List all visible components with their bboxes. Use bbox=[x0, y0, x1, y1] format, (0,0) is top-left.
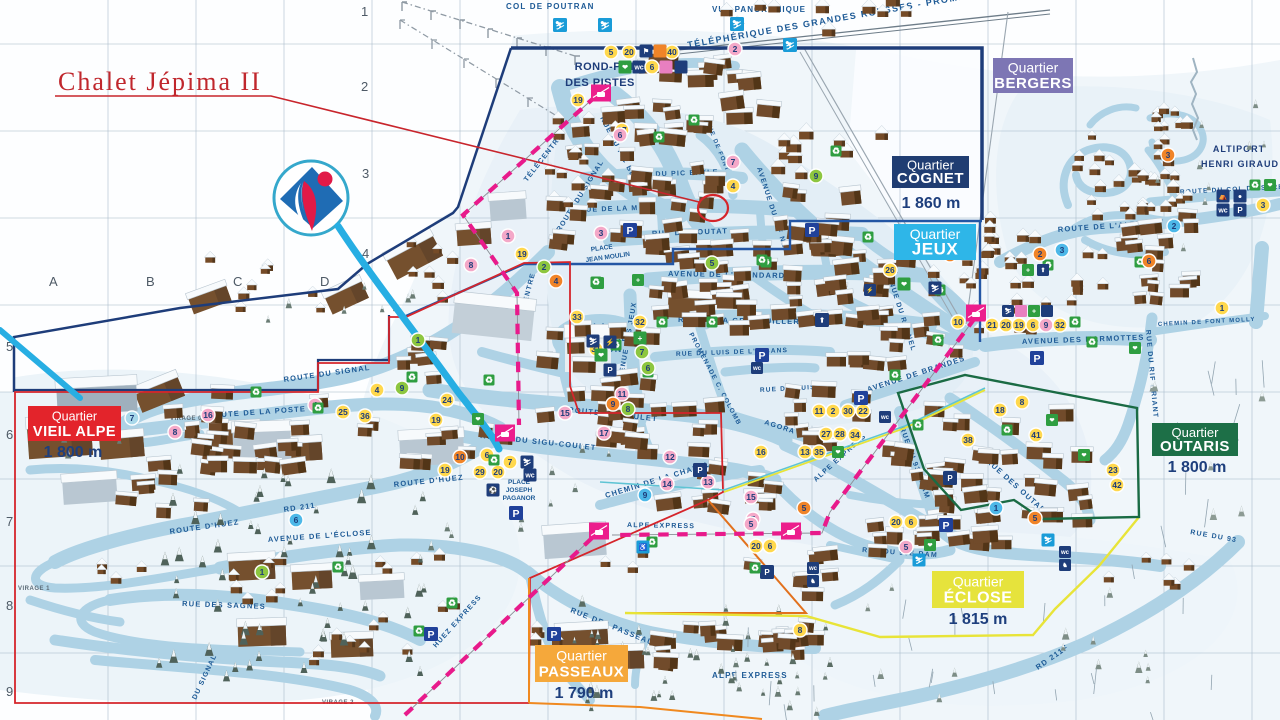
svg-text:♻: ♻ bbox=[1251, 180, 1259, 190]
svg-text:2: 2 bbox=[361, 79, 368, 94]
svg-text:42: 42 bbox=[1112, 480, 1122, 490]
svg-text:33: 33 bbox=[572, 312, 582, 322]
svg-text:7: 7 bbox=[6, 514, 13, 529]
svg-text:8: 8 bbox=[469, 260, 474, 270]
svg-text:19: 19 bbox=[431, 415, 441, 425]
svg-text:wc: wc bbox=[880, 415, 890, 421]
svg-text:P: P bbox=[512, 508, 519, 520]
svg-text:21: 21 bbox=[987, 320, 997, 330]
svg-text:6: 6 bbox=[768, 541, 773, 551]
svg-text:⛷: ⛷ bbox=[555, 20, 565, 30]
svg-text:17: 17 bbox=[599, 428, 609, 438]
svg-text:9: 9 bbox=[814, 171, 819, 181]
svg-text:B: B bbox=[146, 274, 155, 289]
svg-text:15: 15 bbox=[560, 408, 570, 418]
svg-text:Quartier: Quartier bbox=[556, 648, 607, 664]
svg-text:⛷: ⛷ bbox=[732, 19, 742, 29]
svg-text:3: 3 bbox=[362, 166, 369, 181]
svg-text:♻: ♻ bbox=[490, 455, 498, 465]
svg-text:C: C bbox=[233, 274, 242, 289]
svg-text:wc: wc bbox=[1217, 208, 1227, 215]
svg-text:+: + bbox=[1032, 309, 1036, 316]
svg-text:26: 26 bbox=[885, 265, 895, 275]
svg-text:1 800 m: 1 800 m bbox=[44, 444, 103, 461]
svg-text:❤: ❤ bbox=[1049, 418, 1054, 424]
svg-text:12: 12 bbox=[665, 452, 675, 462]
svg-text:⬆: ⬆ bbox=[819, 317, 825, 325]
svg-text:7: 7 bbox=[508, 457, 513, 467]
svg-text:♻: ♻ bbox=[485, 375, 493, 385]
svg-text:♻: ♻ bbox=[758, 255, 766, 265]
svg-text:JOSEPH: JOSEPH bbox=[506, 487, 533, 494]
svg-text:♻: ♻ bbox=[708, 317, 716, 327]
svg-text:32: 32 bbox=[1055, 320, 1065, 330]
svg-text:Quartier: Quartier bbox=[52, 410, 97, 424]
svg-text:9: 9 bbox=[643, 490, 648, 500]
svg-text:40: 40 bbox=[667, 47, 677, 57]
svg-text:20: 20 bbox=[493, 467, 503, 477]
svg-text:VIEIL ALPE: VIEIL ALPE bbox=[33, 424, 116, 440]
svg-text:❤: ❤ bbox=[901, 282, 907, 289]
svg-text:6: 6 bbox=[618, 130, 623, 140]
svg-text:♻: ♻ bbox=[655, 132, 663, 142]
svg-text:6: 6 bbox=[1147, 256, 1152, 266]
svg-text:♻: ♻ bbox=[1088, 337, 1096, 347]
svg-text:1: 1 bbox=[416, 335, 421, 345]
svg-text:ÉCLOSE: ÉCLOSE bbox=[944, 587, 1013, 606]
svg-text:Quartier: Quartier bbox=[1008, 60, 1059, 76]
svg-text:wc: wc bbox=[752, 366, 762, 372]
svg-text:9: 9 bbox=[1044, 320, 1049, 330]
svg-text:41: 41 bbox=[1031, 430, 1041, 440]
svg-text:⛷: ⛷ bbox=[600, 20, 610, 30]
svg-text:♻: ♻ bbox=[914, 420, 922, 430]
svg-text:❤: ❤ bbox=[1267, 183, 1272, 189]
svg-text:9: 9 bbox=[400, 383, 405, 393]
svg-text:PAGANOR: PAGANOR bbox=[503, 495, 536, 502]
svg-text:●: ● bbox=[1238, 194, 1242, 201]
svg-text:2: 2 bbox=[733, 44, 738, 54]
svg-text:10: 10 bbox=[953, 317, 963, 327]
svg-text:JEUX: JEUX bbox=[912, 240, 959, 259]
svg-text:8: 8 bbox=[626, 404, 631, 414]
svg-text:24: 24 bbox=[442, 395, 452, 405]
svg-text:D: D bbox=[320, 274, 329, 289]
svg-text:20: 20 bbox=[1001, 320, 1011, 330]
svg-text:8: 8 bbox=[1020, 397, 1025, 407]
svg-text:5: 5 bbox=[609, 47, 614, 57]
svg-text:♻: ♻ bbox=[415, 626, 423, 636]
svg-text:♻: ♻ bbox=[334, 562, 342, 572]
svg-text:9: 9 bbox=[611, 399, 616, 409]
svg-text:♻: ♻ bbox=[934, 335, 942, 345]
svg-text:19: 19 bbox=[440, 465, 450, 475]
svg-text:20: 20 bbox=[891, 517, 901, 527]
svg-text:♻: ♻ bbox=[658, 317, 666, 327]
svg-text:Chalet Jépima II: Chalet Jépima II bbox=[58, 67, 262, 96]
svg-text:⛷: ⛷ bbox=[931, 284, 940, 293]
svg-text:30: 30 bbox=[843, 406, 853, 416]
svg-text:wc: wc bbox=[1060, 550, 1070, 556]
svg-text:♻: ♻ bbox=[751, 563, 759, 573]
svg-text:1: 1 bbox=[506, 231, 511, 241]
svg-text:P: P bbox=[808, 225, 815, 237]
svg-text:19: 19 bbox=[1014, 320, 1024, 330]
svg-text:1 790 m: 1 790 m bbox=[555, 685, 614, 702]
svg-text:P: P bbox=[764, 568, 770, 577]
svg-text:6: 6 bbox=[1031, 320, 1036, 330]
svg-text:5: 5 bbox=[904, 542, 909, 552]
svg-text:1: 1 bbox=[1220, 303, 1225, 313]
svg-text:⛷: ⛷ bbox=[589, 337, 598, 346]
svg-text:❤: ❤ bbox=[927, 543, 932, 549]
svg-text:38: 38 bbox=[963, 435, 973, 445]
svg-text:⬆: ⬆ bbox=[1040, 267, 1045, 274]
svg-text:⚑: ⚑ bbox=[643, 48, 649, 56]
svg-text:29: 29 bbox=[475, 467, 485, 477]
svg-text:18: 18 bbox=[995, 405, 1005, 415]
svg-text:❤: ❤ bbox=[1081, 453, 1086, 459]
svg-text:wc: wc bbox=[633, 65, 643, 72]
svg-text:2: 2 bbox=[831, 406, 836, 416]
svg-text:7: 7 bbox=[640, 347, 645, 357]
svg-text:A: A bbox=[49, 274, 58, 289]
svg-text:+: + bbox=[638, 334, 643, 343]
svg-text:P: P bbox=[607, 366, 613, 375]
svg-text:2: 2 bbox=[1172, 221, 1177, 231]
svg-text:25: 25 bbox=[338, 407, 348, 417]
svg-text:⛷: ⛷ bbox=[915, 556, 924, 565]
svg-text:7: 7 bbox=[130, 413, 135, 423]
svg-text:❤: ❤ bbox=[598, 353, 604, 360]
svg-text:6: 6 bbox=[294, 515, 299, 525]
svg-text:16: 16 bbox=[756, 447, 766, 457]
svg-text:wc: wc bbox=[808, 566, 818, 572]
svg-text:PASSEAUX: PASSEAUX bbox=[539, 663, 624, 680]
svg-text:P: P bbox=[626, 225, 633, 237]
svg-text:OUTARIS: OUTARIS bbox=[1160, 438, 1230, 455]
svg-text:♻: ♻ bbox=[314, 403, 322, 413]
svg-text:3: 3 bbox=[1060, 245, 1065, 255]
svg-text:2: 2 bbox=[1038, 249, 1043, 259]
svg-text:1: 1 bbox=[994, 503, 999, 513]
svg-text:19: 19 bbox=[517, 249, 527, 259]
svg-text:13: 13 bbox=[703, 477, 713, 487]
svg-text:♻: ♻ bbox=[1071, 317, 1079, 327]
svg-text:♻: ♻ bbox=[832, 146, 840, 156]
svg-text:28: 28 bbox=[835, 429, 845, 439]
svg-text:♞: ♞ bbox=[810, 578, 815, 585]
svg-text:3: 3 bbox=[1166, 150, 1171, 160]
svg-text:6: 6 bbox=[909, 517, 914, 527]
svg-text:⛷: ⛷ bbox=[1004, 307, 1012, 315]
svg-text:6: 6 bbox=[6, 427, 13, 442]
svg-text:❤: ❤ bbox=[475, 417, 480, 423]
svg-text:1 800 m: 1 800 m bbox=[1168, 459, 1227, 476]
svg-text:1 860 m: 1 860 m bbox=[902, 195, 961, 212]
svg-text:⚡: ⚡ bbox=[866, 286, 873, 294]
svg-text:20: 20 bbox=[751, 541, 761, 551]
svg-text:P: P bbox=[427, 629, 434, 641]
svg-text:5: 5 bbox=[802, 503, 807, 513]
svg-text:♿: ♿ bbox=[639, 543, 648, 552]
svg-text:22: 22 bbox=[858, 406, 868, 416]
svg-text:36: 36 bbox=[360, 411, 370, 421]
svg-text:ALTIPORT: ALTIPORT bbox=[1213, 144, 1265, 154]
svg-text:8: 8 bbox=[6, 598, 13, 613]
svg-text:♻: ♻ bbox=[690, 115, 698, 125]
svg-text:5: 5 bbox=[749, 519, 754, 529]
svg-text:15: 15 bbox=[746, 492, 756, 502]
svg-text:11: 11 bbox=[815, 406, 824, 416]
svg-text:10: 10 bbox=[455, 452, 465, 462]
svg-text:❤: ❤ bbox=[622, 65, 628, 72]
svg-text:2: 2 bbox=[542, 262, 547, 272]
svg-text:⚡: ⚡ bbox=[606, 338, 615, 347]
svg-text:P: P bbox=[1033, 353, 1040, 365]
svg-text:P: P bbox=[550, 629, 557, 641]
svg-text:❤: ❤ bbox=[835, 450, 840, 456]
svg-text:P: P bbox=[1237, 206, 1243, 215]
svg-text:VIRAGE 1: VIRAGE 1 bbox=[18, 586, 50, 592]
svg-text:⛷: ⛷ bbox=[785, 40, 795, 50]
svg-text:27: 27 bbox=[821, 429, 831, 439]
svg-text:3: 3 bbox=[599, 228, 604, 238]
svg-text:1: 1 bbox=[260, 567, 265, 577]
svg-text:P: P bbox=[697, 466, 703, 475]
svg-text:1 815 m: 1 815 m bbox=[949, 611, 1008, 628]
svg-text:9: 9 bbox=[6, 684, 13, 699]
svg-text:P: P bbox=[857, 393, 864, 405]
svg-text:wc: wc bbox=[524, 473, 534, 480]
svg-text:COL DE POUTRAN: COL DE POUTRAN bbox=[506, 2, 595, 11]
svg-text:7: 7 bbox=[731, 157, 736, 167]
svg-text:Quartier: Quartier bbox=[953, 574, 1004, 590]
svg-text:P: P bbox=[942, 520, 949, 532]
svg-text:8: 8 bbox=[798, 625, 803, 635]
svg-text:34: 34 bbox=[850, 430, 860, 440]
svg-text:16: 16 bbox=[203, 410, 213, 420]
svg-text:6: 6 bbox=[646, 363, 651, 373]
svg-text:4: 4 bbox=[554, 276, 559, 286]
svg-text:♞: ♞ bbox=[1062, 562, 1067, 569]
svg-text:11: 11 bbox=[618, 389, 627, 399]
svg-text:ALPE EXPRESS: ALPE EXPRESS bbox=[627, 522, 695, 530]
svg-text:4: 4 bbox=[731, 181, 736, 191]
svg-text:+: + bbox=[1026, 268, 1030, 275]
svg-text:♻: ♻ bbox=[1003, 425, 1011, 435]
svg-text:4: 4 bbox=[375, 385, 380, 395]
svg-text:23: 23 bbox=[1108, 465, 1118, 475]
svg-text:♻: ♻ bbox=[864, 232, 872, 242]
svg-text:♻: ♻ bbox=[448, 598, 456, 608]
svg-text:35: 35 bbox=[814, 447, 824, 457]
svg-text:20: 20 bbox=[624, 47, 634, 57]
svg-text:COGNET: COGNET bbox=[897, 170, 964, 187]
svg-text:6: 6 bbox=[650, 62, 655, 72]
svg-text:32: 32 bbox=[635, 317, 645, 327]
svg-text:⚽: ⚽ bbox=[488, 486, 498, 495]
svg-text:♻: ♻ bbox=[891, 370, 899, 380]
svg-text:♻: ♻ bbox=[252, 387, 260, 397]
svg-text:8: 8 bbox=[173, 427, 178, 437]
svg-text:1: 1 bbox=[361, 4, 368, 19]
svg-text:14: 14 bbox=[662, 479, 672, 489]
svg-text:P: P bbox=[758, 350, 765, 362]
svg-text:⛷: ⛷ bbox=[523, 458, 532, 467]
svg-text:♻: ♻ bbox=[592, 277, 600, 287]
svg-text:⛺: ⛺ bbox=[1219, 194, 1228, 201]
svg-text:⛷: ⛷ bbox=[1044, 536, 1053, 545]
svg-text:❤: ❤ bbox=[1132, 346, 1137, 352]
svg-text:19: 19 bbox=[573, 95, 583, 105]
svg-text:+: + bbox=[636, 278, 640, 285]
svg-text:5: 5 bbox=[710, 258, 715, 268]
svg-text:BERGERS: BERGERS bbox=[994, 75, 1072, 92]
svg-text:♻: ♻ bbox=[408, 372, 416, 382]
svg-text:HENRI GIRAUD: HENRI GIRAUD bbox=[1201, 159, 1279, 169]
svg-text:P: P bbox=[947, 474, 953, 483]
svg-text:5: 5 bbox=[1033, 513, 1038, 523]
svg-text:3: 3 bbox=[1261, 200, 1266, 210]
svg-text:13: 13 bbox=[800, 447, 810, 457]
